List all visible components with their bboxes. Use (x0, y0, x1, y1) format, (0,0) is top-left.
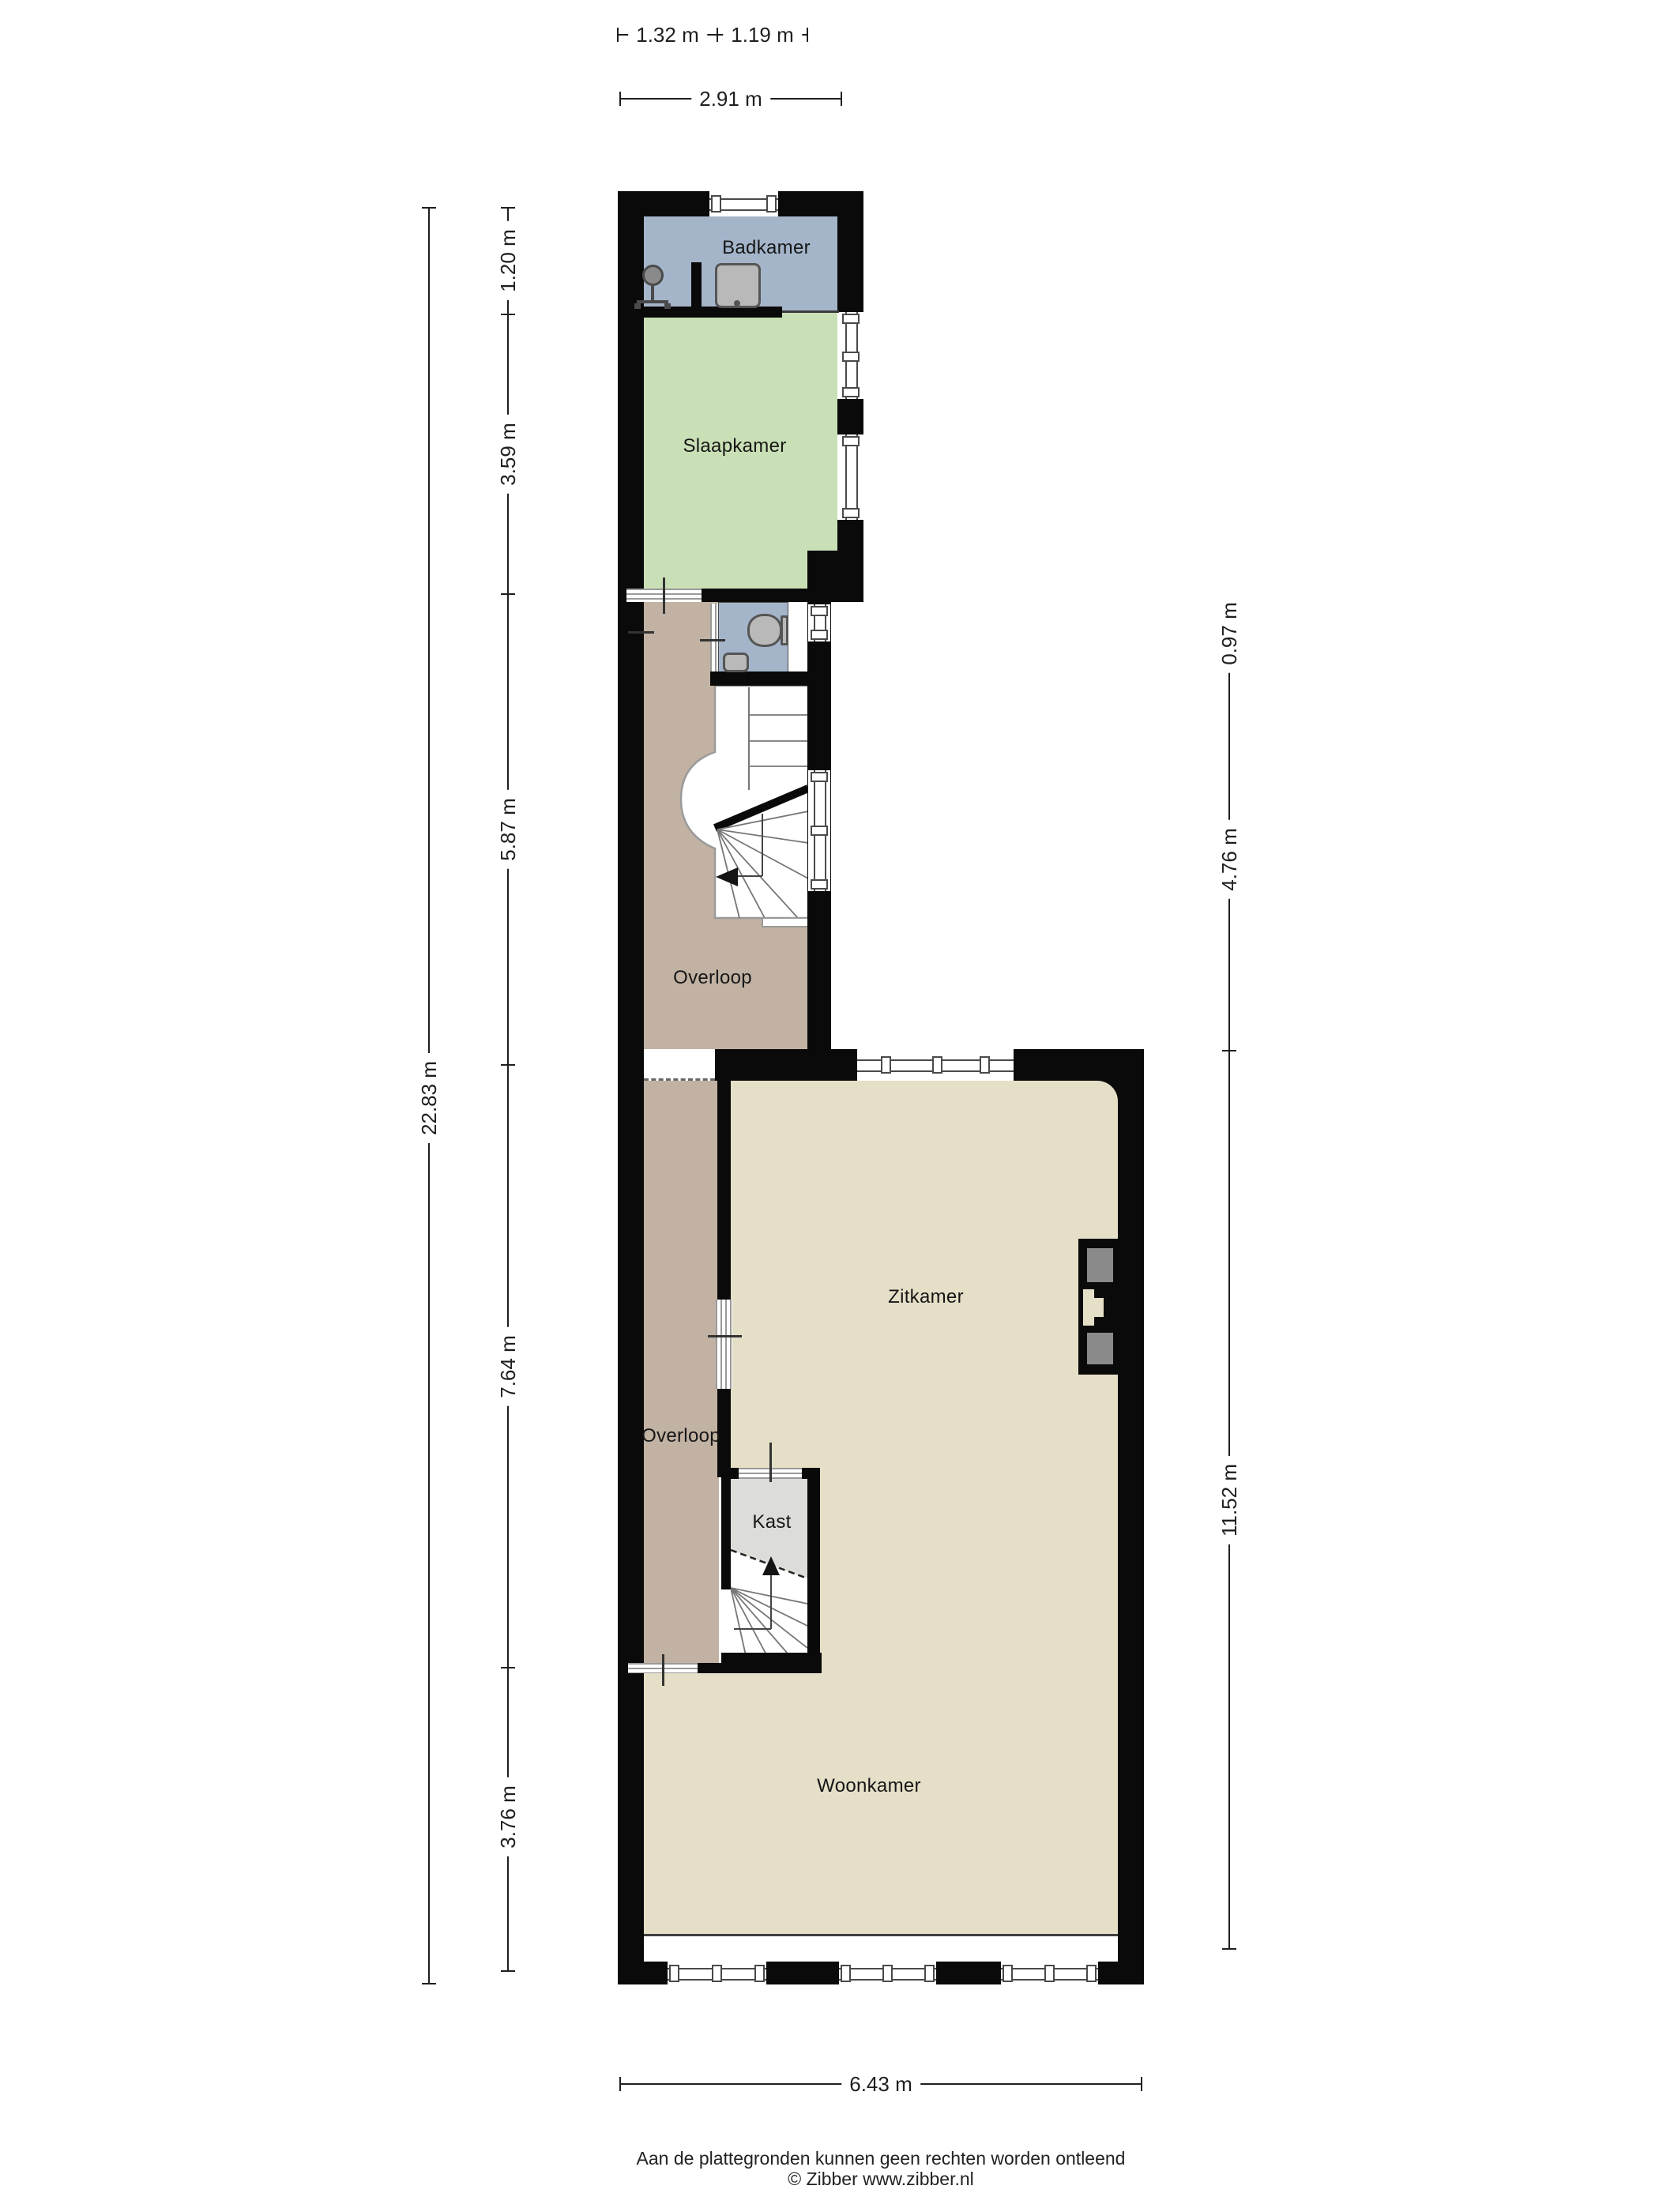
wall (1098, 1962, 1144, 1984)
room-label-overloop-beneden: Overloop (641, 1426, 720, 1446)
dimension-tick (422, 1983, 436, 1984)
wall (802, 1468, 820, 1479)
wall (837, 191, 863, 312)
window-mullion (811, 630, 828, 640)
window-mullion (842, 314, 860, 324)
wall (618, 1663, 628, 1673)
window (709, 191, 778, 216)
wall (766, 1962, 839, 1984)
sink-icon (723, 653, 749, 672)
door-opening (644, 1049, 715, 1081)
window (839, 1962, 936, 1984)
toilet-cistern (781, 615, 788, 645)
window-mullion (811, 772, 828, 782)
window-mullion (811, 879, 828, 890)
window-mullion (882, 1965, 893, 1982)
window (857, 1049, 1014, 1081)
wall (702, 589, 807, 602)
living-room-floor (644, 1673, 731, 1934)
window-mullion (669, 1965, 679, 1982)
room-label-kast: Kast (752, 1512, 791, 1533)
window-mullion (711, 195, 721, 213)
wall (715, 1049, 857, 1081)
room-label-overloop-boven: Overloop (673, 968, 752, 988)
dim-label: 7.64 m (496, 1327, 520, 1406)
window-mullion (932, 1056, 942, 1074)
window (668, 1962, 766, 1984)
wall (721, 1468, 739, 1479)
wall (710, 671, 831, 686)
dimension-tick (619, 92, 621, 106)
wall (618, 1049, 644, 1984)
wall (721, 1479, 731, 1589)
wall (691, 262, 702, 310)
window-glass (845, 434, 858, 520)
wall (698, 1663, 822, 1673)
door-leaf (663, 577, 665, 614)
window-mullion (766, 195, 777, 213)
door-leaf (769, 1443, 772, 1482)
window-mullion (980, 1056, 990, 1074)
window-mullion (1086, 1965, 1097, 1982)
stairs-upper (671, 681, 814, 927)
wall-line (782, 310, 839, 313)
toilet-icon (747, 614, 782, 647)
toilet-side-gap (788, 602, 807, 675)
window-mullion (842, 436, 860, 446)
room-label-zitkamer: Zitkamer (888, 1287, 964, 1307)
wall (807, 551, 863, 602)
shower-foot (634, 303, 641, 309)
window-mullion (754, 1965, 765, 1982)
window (808, 604, 830, 641)
dim-label: 4.76 m (1217, 820, 1241, 899)
door-swing (700, 639, 725, 641)
dimension-tick (617, 28, 619, 42)
wall (618, 191, 644, 1081)
window-mullion (842, 387, 860, 397)
dim-label: 3.59 m (496, 415, 520, 494)
window-mullion (1003, 1965, 1013, 1982)
dimension-tick (422, 207, 436, 209)
shower-valve (637, 300, 668, 303)
shower-icon (642, 265, 664, 286)
dimension-tick (807, 28, 808, 42)
window (1001, 1962, 1098, 1984)
wall (807, 1479, 820, 1653)
window-mullion (842, 352, 860, 362)
dimension-tick (501, 593, 515, 595)
dim-label: 1.19 m (723, 23, 802, 47)
floorplan-canvas: Badkamer Slaapkamer Overloop Zitkamer Ka… (0, 0, 1659, 2212)
dimension-tick (717, 28, 718, 42)
window-mullion (924, 1965, 935, 1982)
dimension-tick (501, 314, 515, 315)
dimension-tick (1141, 2077, 1142, 2091)
window-mullion (712, 1965, 722, 1982)
window-mullion (1044, 1965, 1055, 1982)
dimension-tick (501, 1667, 515, 1668)
dim-label: 0.97 m (1217, 594, 1241, 673)
dim-label: 6.43 m (841, 2072, 920, 2096)
window-mullion (841, 1965, 851, 1982)
footer-disclaimer: Aan de plattegronden kunnen geen rechten… (637, 2148, 1126, 2169)
chimney-block (1087, 1333, 1113, 1364)
dim-label: 2.91 m (691, 87, 770, 111)
dimension-tick (1222, 1948, 1236, 1950)
dim-label: 1.32 m (628, 23, 707, 47)
wall (837, 520, 863, 553)
shower-foot (664, 303, 671, 309)
wall (618, 1962, 668, 1984)
dimension-tick (501, 1970, 515, 1972)
window-mullion (842, 508, 860, 518)
door-leaf (662, 1654, 664, 1686)
wall (618, 589, 626, 602)
dim-label: 5.87 m (496, 790, 520, 869)
door-swing (628, 631, 654, 634)
wall (1118, 1049, 1144, 1984)
window (837, 434, 863, 520)
bay-strip (644, 1934, 1118, 1962)
dim-label: 22.83 m (417, 1053, 441, 1143)
lower-landing-floor (644, 1081, 719, 1663)
dimension-tick (1222, 1050, 1236, 1051)
sink-faucet (734, 300, 740, 307)
dimension-tick (619, 2077, 621, 2091)
stairs-lower (731, 1479, 807, 1663)
chimney-block (1087, 1248, 1113, 1282)
dim-label: 3.76 m (496, 1777, 520, 1856)
stairwell-outline (681, 686, 808, 918)
footer-credit: © Zibber www.zibber.nl (788, 2169, 974, 2189)
room-label-badkamer: Badkamer (722, 238, 811, 258)
room-label-slaapkamer: Slaapkamer (683, 436, 786, 457)
door-swing (708, 1335, 742, 1337)
wall (717, 1081, 731, 1300)
shower-stem (651, 286, 654, 302)
window (837, 312, 863, 399)
dim-label: 1.20 m (496, 221, 520, 300)
door-opening (710, 604, 718, 671)
dimension-tick (841, 92, 842, 106)
window-mullion (811, 606, 828, 616)
room-label-woonkamer: Woonkamer (817, 1776, 921, 1796)
door-opening (716, 1300, 732, 1389)
wall (837, 399, 863, 434)
window (808, 770, 830, 891)
window-mullion (881, 1056, 891, 1074)
dimension-tick (501, 207, 515, 209)
window-mullion (811, 826, 828, 836)
dim-label: 11.52 m (1217, 1456, 1241, 1544)
dimension-line (1228, 599, 1230, 1950)
wall (936, 1962, 1001, 1984)
dimension-tick (501, 1064, 515, 1066)
